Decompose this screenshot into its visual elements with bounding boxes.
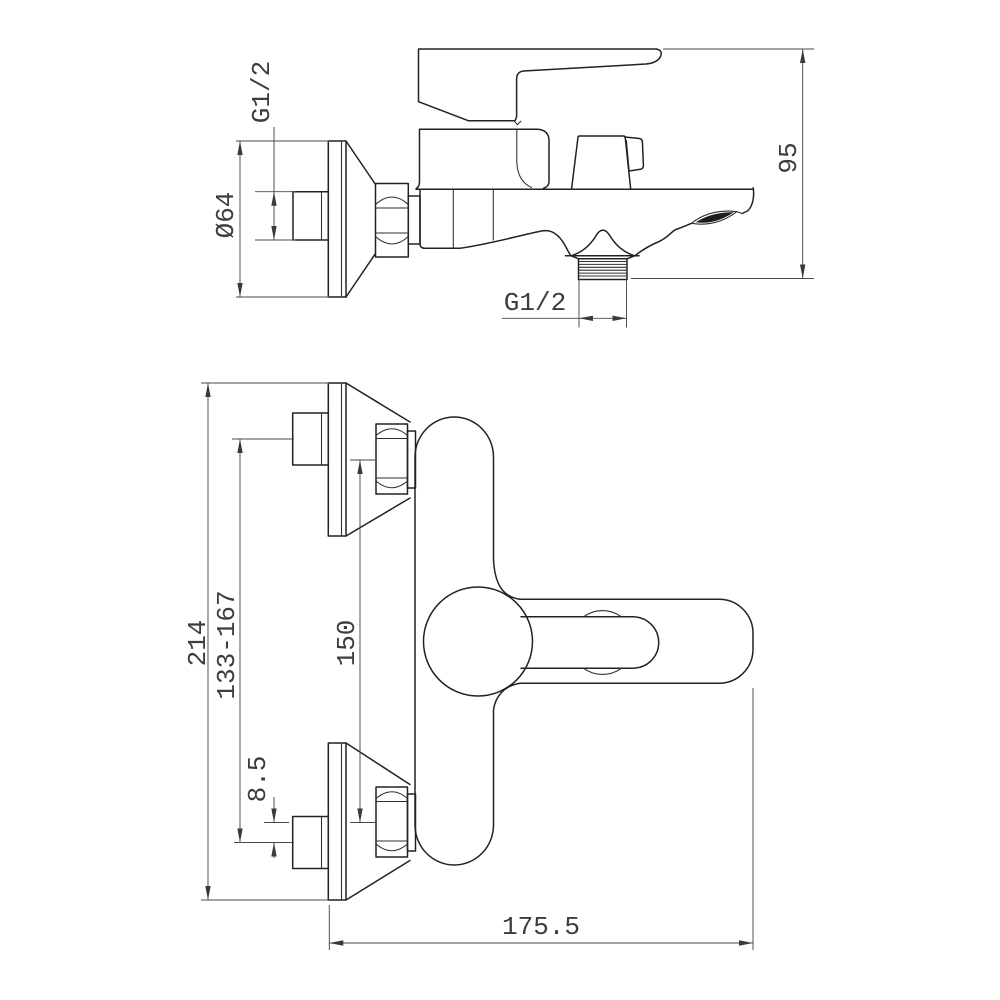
top-inlet-flange (293, 383, 416, 536)
arrowhead-down (237, 829, 242, 843)
spout-underside-right (635, 223, 692, 256)
handle-lever-inner (521, 617, 659, 668)
dim-label-overall-height: 95 (774, 142, 804, 173)
diverter-tab (625, 137, 644, 171)
arrowhead-down (237, 283, 242, 297)
top-nut-facets (376, 439, 408, 479)
handle-seam-tab (514, 121, 521, 125)
dim-overall-width: 175.5 (329, 688, 753, 950)
hex-nut-body (376, 184, 409, 258)
dim-label-inlet-span: 133-167 (212, 590, 242, 699)
bottom-escutcheon-plate (328, 743, 346, 900)
dim-connection-centers: 150 (264, 460, 377, 823)
handle-knob (424, 587, 533, 696)
cartridge-cap-arcs (584, 611, 622, 675)
dim-label-overall-width: 175.5 (502, 912, 580, 942)
valve-body-side (417, 129, 550, 188)
thread-lines (579, 262, 628, 277)
dim-wall-thread: G1/2 (247, 61, 296, 240)
escutcheon-cone (346, 141, 376, 297)
hex-nut-side (376, 184, 409, 258)
bottom-inlet-flange (293, 743, 416, 900)
dim-extension-lines (579, 280, 627, 328)
hex-nut-facets (376, 208, 409, 233)
shower-outlet-thread (571, 256, 634, 280)
dim-label-wall-thread: G1/2 (247, 61, 277, 123)
mixer-body-front (415, 417, 753, 865)
outlet-boss (571, 230, 634, 256)
arrowhead-up (237, 439, 242, 453)
arrowhead-up (271, 843, 276, 857)
arrowhead-up (357, 460, 362, 474)
arrowhead-right (739, 940, 753, 945)
technical-drawing-canvas: G1/2 Ø64 95 G1/2 (0, 0, 1000, 1000)
dim-overall-length: 214 (183, 383, 329, 900)
escutcheon-plate (328, 141, 346, 297)
nut-connector-side (408, 196, 420, 244)
dim-extension-lines (329, 688, 753, 950)
arrowhead-left (579, 316, 593, 321)
top-nut-chamfers (376, 429, 408, 488)
diverter-body (572, 136, 631, 189)
hex-nut-chamfers (376, 197, 409, 244)
arrowhead-up (800, 49, 805, 63)
wall-nipple (293, 192, 328, 240)
arrowhead-down (357, 809, 362, 823)
bottom-nut-facets (376, 802, 408, 842)
aerator-notch (737, 212, 742, 214)
arrowhead-up (237, 141, 242, 155)
bonnet-contour (517, 129, 532, 187)
top-escutcheon-cone (346, 383, 410, 536)
dim-label-escutcheon-diameter: Ø64 (211, 192, 241, 239)
side-view: G1/2 Ø64 95 G1/2 (211, 49, 814, 328)
arrowhead-down (271, 809, 276, 823)
dim-label-outlet-thread: G1/2 (504, 288, 566, 318)
bottom-hex-nut (376, 787, 408, 857)
bottom-nipple (293, 817, 329, 869)
arrowhead-right (613, 316, 627, 321)
arrowhead-left (329, 940, 343, 945)
body-base-side (420, 189, 460, 248)
arrowhead-up (205, 383, 210, 397)
dim-extension-lines (236, 141, 329, 297)
dim-escutcheon-diameter: Ø64 (211, 141, 329, 297)
aerator (692, 211, 743, 224)
spout-underside-left (460, 231, 571, 256)
dim-label-overall-length: 214 (183, 620, 213, 667)
arrowhead-down (271, 226, 276, 240)
dim-extension-lines (255, 192, 296, 240)
dim-label-eccentric-offset: 8.5 (243, 756, 273, 803)
dim-outlet-thread: G1/2 (502, 280, 627, 328)
diverter-knob (572, 136, 644, 189)
lever-handle-side (419, 49, 662, 121)
top-hex-nut (376, 424, 408, 494)
arrowhead-up (271, 192, 276, 206)
dim-label-connection-centers: 150 (332, 620, 362, 667)
arrowhead-down (800, 265, 805, 279)
bottom-nut-chamfers (376, 792, 408, 851)
spout-tip-edge (742, 188, 754, 214)
dim-overall-height: 95 (631, 49, 814, 279)
bottom-escutcheon-cone (346, 743, 410, 900)
body-base-contours (453, 189, 493, 247)
front-view: 214 133-167 150 8.5 (183, 383, 753, 950)
top-nipple (293, 413, 329, 465)
arrowhead-down (205, 886, 210, 900)
top-escutcheon-plate (328, 383, 346, 536)
